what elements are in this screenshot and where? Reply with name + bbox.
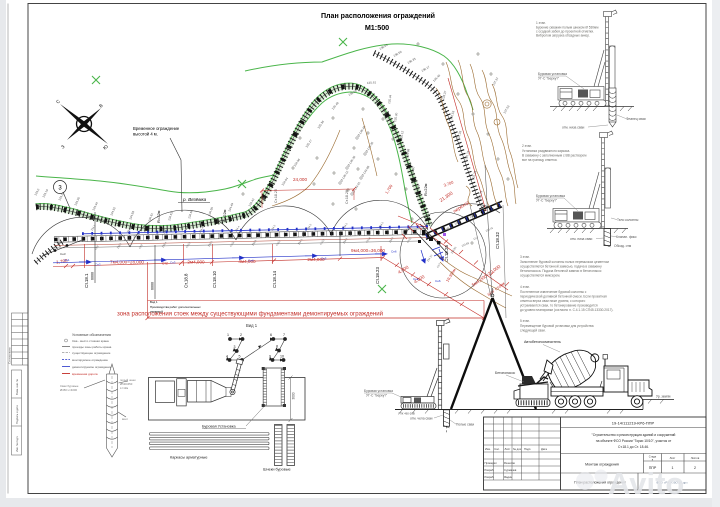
- svg-text:винт: винт: [122, 417, 129, 421]
- svg-text:отм. низа сваи: отм. низа сваи: [562, 126, 584, 130]
- svg-text:№ док: № док: [513, 448, 522, 451]
- svg-text:Полые сваи: Полые сваи: [456, 423, 474, 427]
- svg-text:все на границу отметки.: все на границу отметки.: [522, 158, 558, 162]
- svg-text:УГ-С "Беркут": УГ-С "Беркут": [538, 77, 560, 81]
- svg-text:до уровня планировки (согласно: до уровня планировки (согласно п. С.4.1.…: [520, 308, 613, 312]
- svg-text:Фадин: Фадин: [504, 475, 513, 479]
- svg-text:Взам. инв. №: Взам. инв. №: [15, 379, 19, 395]
- svg-text:осуществляется миксером.: осуществляется миксером.: [520, 274, 560, 278]
- svg-text:Ст.18.1: Ст.18.1: [84, 273, 89, 288]
- svg-text:Лист: Лист: [505, 447, 512, 451]
- svg-text:8: 8: [276, 345, 278, 349]
- svg-text:План расположения ограждений: План расположения ограждений: [321, 11, 435, 20]
- svg-text:5 этап.: 5 этап.: [520, 319, 530, 323]
- svg-text:Решетов: Решетов: [504, 461, 515, 465]
- svg-text:Сн2: Сн2: [95, 263, 101, 267]
- svg-text:Ст.18.25: Ст.18.25: [274, 189, 278, 203]
- svg-text:Постепенное извлечение буровой: Постепенное извлечение буровой колонны с: [520, 290, 587, 294]
- svg-text:2 этап.: 2 этап.: [522, 144, 532, 148]
- svg-text:Автобетоносмеситель: Автобетоносмеситель: [524, 340, 561, 344]
- svg-text:Тело колонны: Тело колонны: [617, 218, 639, 222]
- svg-text:Сн1: Сн1: [64, 258, 70, 262]
- svg-text:Ст.18.26: Ст.18.26: [345, 190, 349, 204]
- svg-text:В скважину с заполненным с ВВ: В скважину с заполненным с ВВ раствором: [522, 154, 586, 158]
- svg-text:2: 2: [694, 466, 696, 470]
- svg-text:Клапан. фикс: Клапан. фикс: [616, 235, 637, 239]
- svg-text:Разраб.: Разраб.: [485, 475, 495, 479]
- svg-text:Ст2: Ст2: [162, 262, 168, 266]
- svg-text:М1:500: М1:500: [365, 23, 389, 32]
- svg-text:Буровая установка: Буровая установка: [538, 72, 567, 76]
- svg-text:УГ-С "Беркут": УГ-С "Беркут": [536, 199, 558, 203]
- svg-text:УПК 460-26В: УПК 460-26В: [398, 412, 415, 416]
- svg-text:существующее ограждение: существующее ограждение: [72, 351, 111, 355]
- svg-text:7: 7: [283, 333, 285, 337]
- svg-text:24,000: 24,000: [293, 177, 307, 182]
- svg-text:монтируемое ограждение: монтируемое ограждение: [72, 358, 108, 362]
- svg-text:Avito: Avito: [608, 466, 684, 501]
- svg-text:Снв: Снв: [413, 277, 419, 281]
- svg-text:отм. низа сваи: отм. низа сваи: [570, 237, 592, 241]
- svg-text:Ст.18.1 до Ст. 18.46.: Ст.18.1 до Ст. 18.46.: [618, 445, 649, 449]
- svg-text:9м4,000=36,000: 9м4,000=36,000: [351, 248, 385, 253]
- svg-text:1: 1: [227, 333, 229, 337]
- svg-text:Сп5: Сп5: [321, 257, 327, 261]
- svg-text:Заполнение буровой колонны пол: Заполнение буровой колонны полых перемыч…: [520, 260, 609, 264]
- svg-text:L=12м: L=12м: [120, 386, 128, 390]
- svg-text:Сн4: Сн4: [248, 259, 254, 263]
- svg-text:Ст.18.25: Ст.18.25: [444, 245, 449, 262]
- svg-text:Ø450 L=4000: Ø450 L=4000: [60, 388, 77, 392]
- svg-text:Ст.18.8: Ст.18.8: [184, 273, 189, 288]
- svg-text:отм. чела сваи: отм. чела сваи: [410, 417, 433, 421]
- svg-text:следующей сваи.: следующей сваи.: [520, 329, 546, 333]
- svg-text:Сн6: Сн6: [435, 279, 441, 283]
- svg-text:5: 5: [239, 355, 241, 359]
- svg-text:Сн6: Сн6: [391, 250, 397, 254]
- svg-text:135.61: 135.61: [367, 80, 377, 85]
- svg-text:Ст.18.10: Ст.18.10: [212, 271, 217, 288]
- svg-text:временная дорога: временная дорога: [72, 372, 98, 376]
- svg-text:Ст.18.14: Ст.18.14: [272, 271, 277, 288]
- svg-text:Сва - место стоянки крана: Сва - место стоянки крана: [72, 339, 109, 343]
- svg-text:Сурмачев: Сурмачев: [504, 468, 517, 472]
- svg-text:"Строительство и реконструкция: "Строительство и реконструкция зданий и …: [592, 433, 676, 437]
- svg-text:осуществляется бетонной замесь: осуществляется бетонной замесью, подача …: [520, 265, 602, 269]
- svg-text:проезды зоны работы крана: проезды зоны работы крана: [72, 345, 112, 349]
- svg-text:Производства работ дополнитель: Производства работ дополнительных: [150, 305, 201, 309]
- svg-text:Разраб.: Разраб.: [485, 468, 495, 472]
- svg-text:Каркасы арматурные: Каркасы арматурные: [170, 456, 208, 460]
- svg-text:Листов: Листов: [691, 456, 700, 460]
- svg-text:Бетононасос: Бетононасос: [495, 371, 516, 375]
- svg-text:19-14/111219-КР6-ППР: 19-14/111219-КР6-ППР: [612, 421, 655, 426]
- svg-text:Обсад. отм: Обсад. отм: [614, 244, 632, 248]
- svg-text:УГ-С "Беркут": УГ-С "Беркут": [366, 394, 388, 398]
- svg-text:Установка раздвижного каркаса.: Установка раздвижного каркаса.: [522, 149, 570, 153]
- svg-text:Буровая установка: Буровая установка: [364, 389, 393, 393]
- svg-text:4: 4: [226, 355, 228, 359]
- svg-text:3: 3: [234, 345, 236, 349]
- svg-text:6: 6: [270, 333, 272, 337]
- svg-text:10: 10: [280, 355, 284, 359]
- svg-text:6000: 6000: [151, 282, 155, 290]
- svg-text:Условные обозначения: Условные обозначения: [72, 333, 111, 337]
- svg-text:устраиваются сваи, то бетониро: устраиваются сваи, то бетонирование прои…: [520, 304, 598, 308]
- svg-text:Кол.: Кол.: [495, 447, 501, 451]
- svg-text:Шнеки буровые: Шнеки буровые: [263, 468, 291, 472]
- svg-text:R=22м: R=22м: [423, 183, 428, 196]
- svg-text:Проверил: Проверил: [485, 461, 498, 465]
- svg-text:Буровая установка: Буровая установка: [536, 194, 565, 198]
- svg-text:Вибролом загрузка обсадных анк: Вибролом загрузка обсадных анкер.: [536, 34, 590, 38]
- svg-text:3000: 3000: [292, 392, 296, 399]
- svg-text:3 этап.: 3 этап.: [520, 255, 530, 259]
- svg-text:высотой 4 м.: высотой 4 м.: [133, 132, 158, 137]
- svg-text:Вид 1: Вид 1: [150, 300, 158, 304]
- svg-text:пенамкой: пенамкой: [150, 310, 163, 314]
- svg-text:Фланец сваи: Фланец сваи: [626, 117, 646, 121]
- svg-text:периодической доливкой бетонно: периодической доливкой бетонной смеси. Е…: [520, 295, 607, 299]
- svg-text:Вид 1: Вид 1: [246, 323, 258, 328]
- svg-text:1 этап.: 1 этап.: [536, 21, 546, 25]
- svg-text:Инв. № подл.: Инв. № подл.: [15, 436, 19, 452]
- svg-text:на объекте ФСО России "Горки 1: на объекте ФСО России "Горки 10/10", уча…: [596, 439, 672, 443]
- svg-text:Согласовано: Согласовано: [8, 347, 12, 364]
- svg-text:отметка верха сваи ниже уровня: отметка верха сваи ниже уровня, с которо…: [520, 299, 586, 303]
- svg-text:6000: 6000: [91, 272, 95, 280]
- svg-text:Лист: Лист: [670, 456, 676, 460]
- svg-text:Сн3: Сн3: [60, 252, 66, 256]
- svg-text:Буровая Установка: Буровая Установка: [202, 425, 237, 429]
- svg-text:2: 2: [240, 333, 242, 337]
- svg-text:R=22м: R=22м: [156, 210, 161, 223]
- svg-text:Ст.18.23: Ст.18.23: [375, 267, 380, 284]
- svg-text:бетононасоса. Подача бетонной: бетононасоса. Подача бетонной замеси в б…: [520, 269, 602, 273]
- svg-text:Изм.: Изм.: [485, 447, 491, 451]
- svg-text:Временное ограждение: Временное ограждение: [133, 126, 180, 131]
- svg-text:р. Вязёмка: р. Вязёмка: [182, 197, 207, 202]
- svg-text:Ст.18.32: Ст.18.32: [495, 232, 500, 249]
- svg-text:Сп3: Сп3: [170, 261, 176, 265]
- svg-text:демонтируемое ограждение: демонтируемое ограждение: [72, 365, 112, 369]
- svg-text:Дата: Дата: [541, 447, 547, 451]
- svg-text:2м4,000: 2м4,000: [187, 260, 205, 265]
- svg-text:Перемещение буровой установки: Перемещение буровой установки для устрой…: [520, 324, 594, 328]
- svg-text:Подпись и дата: Подпись и дата: [15, 405, 19, 424]
- svg-text:Подп.: Подп.: [524, 447, 531, 451]
- svg-text:4 этап.: 4 этап.: [520, 285, 530, 289]
- svg-text:9: 9: [269, 355, 271, 359]
- svg-text:Ур. земли: Ур. земли: [656, 395, 671, 399]
